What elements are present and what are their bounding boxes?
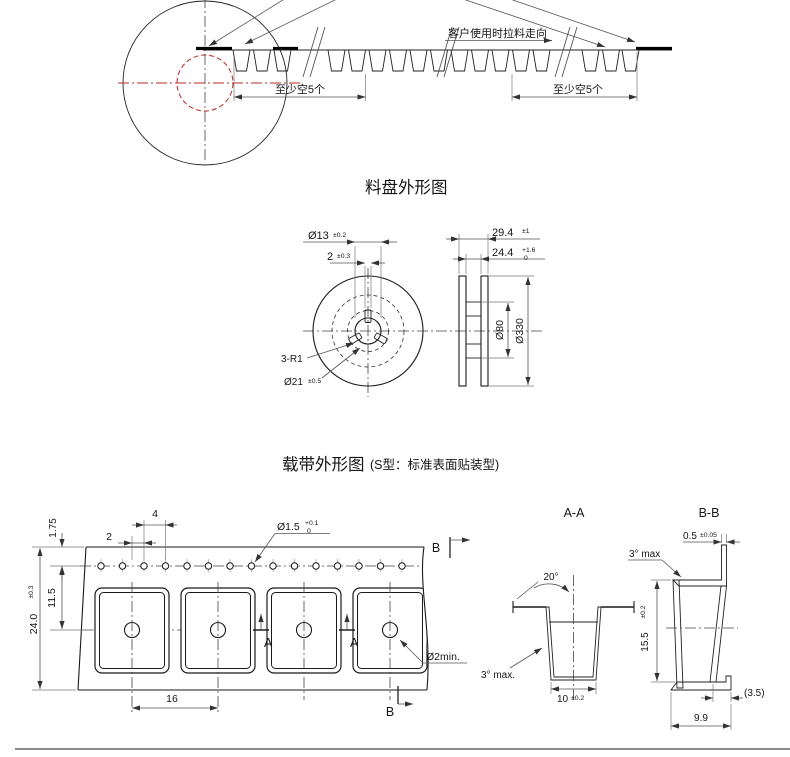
- bb-profile: [671, 545, 731, 690]
- section-aa-view: A-A 20° 3° max. 10 ±0.2: [481, 506, 634, 705]
- reel-outer-width-tol: ±1: [522, 228, 530, 235]
- bb-lip-thickness-label: 0.5: [683, 531, 697, 542]
- drawing-canvas: 客户使用时拉料走向 至少空5个 至少空5个 料盘外形图: [0, 0, 790, 757]
- reel-flange-dia-label: Ø330: [514, 318, 526, 344]
- reel-hub-dia-tol: ±0.5: [308, 378, 321, 385]
- pull-direction-label: 客户使用时拉料走向: [448, 26, 547, 40]
- hole-to-pocket-label: 2: [106, 531, 112, 543]
- reel-inner-width-tol-dn: 0: [524, 255, 528, 262]
- aa-width-tol: ±0.2: [571, 695, 584, 702]
- min-empty-left-label: 至少空5个: [275, 82, 325, 96]
- empty-pockets: [233, 50, 639, 71]
- bb-flange-angle-leader: [628, 560, 681, 577]
- reel-hub-dia-label: Ø21: [284, 377, 303, 388]
- reel-outer-width-label: 29.4: [492, 227, 513, 239]
- leader-lines: [209, 0, 635, 47]
- reel-slot-radius-label: 3-R1: [281, 354, 303, 365]
- bb-lip-thickness-tol: ±0.05: [700, 532, 717, 539]
- min-empty-right-label: 至少空5个: [553, 82, 603, 96]
- section-a-label-1: A: [264, 636, 273, 650]
- sprocket-hole-dia-tol-dn: 0: [307, 528, 311, 535]
- sprocket-hole-leader: [255, 534, 330, 563]
- reel-slot-width-label: 2: [327, 251, 333, 263]
- reel-hub-dia-leader: [322, 348, 360, 378]
- bb-depth-tol: ±0.2: [640, 605, 647, 618]
- section-bb-title: B-B: [699, 506, 720, 520]
- reel-hole-dia-tol: ±0.2: [333, 232, 346, 239]
- reel-inner-width-label: 24.4: [492, 247, 513, 259]
- aa-width-label: 10: [557, 694, 569, 705]
- aa-draft-arc: [534, 584, 569, 592]
- sprocket-hole-dia-label: Ø1.5: [277, 521, 300, 533]
- bb-right-wall: [710, 586, 727, 682]
- reel-hub-lines: [466, 302, 481, 358]
- edge-to-hole-label: 1.75: [48, 518, 59, 538]
- reel-figure-title: 料盘外形图: [365, 178, 448, 197]
- section-aa-title: A-A: [564, 506, 586, 520]
- bb-offset-extensions: [713, 684, 731, 702]
- carrier-tape-figure: 24.0 ±0.3 1.75 11.5 4 2 Ø1.5 +0.1 0: [28, 508, 470, 719]
- aa-wall-angle-label: 3° max.: [481, 670, 515, 681]
- reel-slot-radius-leader: [307, 343, 354, 358]
- bb-left-wall: [673, 580, 683, 688]
- bb-offset-label: (3.5): [744, 688, 765, 699]
- reel-with-tape-figure: 客户使用时拉料走向 至少空5个 至少空5个: [118, 0, 672, 165]
- aa-draft-extension: [517, 582, 538, 599]
- reel-slot-width-tol: ±0.3: [337, 253, 350, 260]
- aa-draft-angle-label: 20°: [543, 572, 558, 583]
- bb-depth-extensions: [651, 580, 675, 682]
- tape-width-label: 24.0: [28, 614, 40, 635]
- center-hole-label: Ø2min.: [426, 651, 460, 663]
- tape-figure-title: 载带外形图: [282, 455, 365, 474]
- hole-to-center-label: 11.5: [46, 588, 58, 608]
- reel-outline-figure: 料盘外形图 Ø13 ±0.2 2 ±0.3: [281, 178, 545, 397]
- section-b-label-top: B: [432, 541, 440, 555]
- tape-figure-subtitle: (S型：标准表面贴装型): [370, 458, 499, 472]
- bb-depth-label: 15.5: [640, 632, 651, 652]
- bb-width-label: 9.9: [694, 713, 708, 724]
- bb-tab-extensions: [722, 534, 727, 543]
- section-a-label-2: A: [350, 636, 359, 650]
- bb-flange-angle-label: 3° max: [629, 549, 660, 560]
- filled-pockets: [369, 50, 509, 71]
- sprocket-hole-dia-tol-up: +0.1: [305, 520, 319, 527]
- sprocket-holes: [98, 559, 405, 573]
- reel-inner-width-tol-up: +1.6: [522, 247, 536, 254]
- hole-pitch-label: 4: [152, 508, 158, 520]
- reel-core-dia-label: Ø80: [494, 320, 506, 340]
- section-b-label-bottom: B: [386, 705, 394, 719]
- tape-width-tol: ±0.3: [28, 585, 35, 598]
- aa-wall-angle-leader: [510, 648, 542, 668]
- reel-hole-dia-label: Ø13: [308, 230, 329, 242]
- section-bb-view: B-B 0.5 ±0.05 3° max 15.5 ±0.2: [628, 506, 765, 730]
- bb-flange-and-tab: [673, 545, 727, 586]
- pocket-pitch-label: 16: [166, 693, 178, 705]
